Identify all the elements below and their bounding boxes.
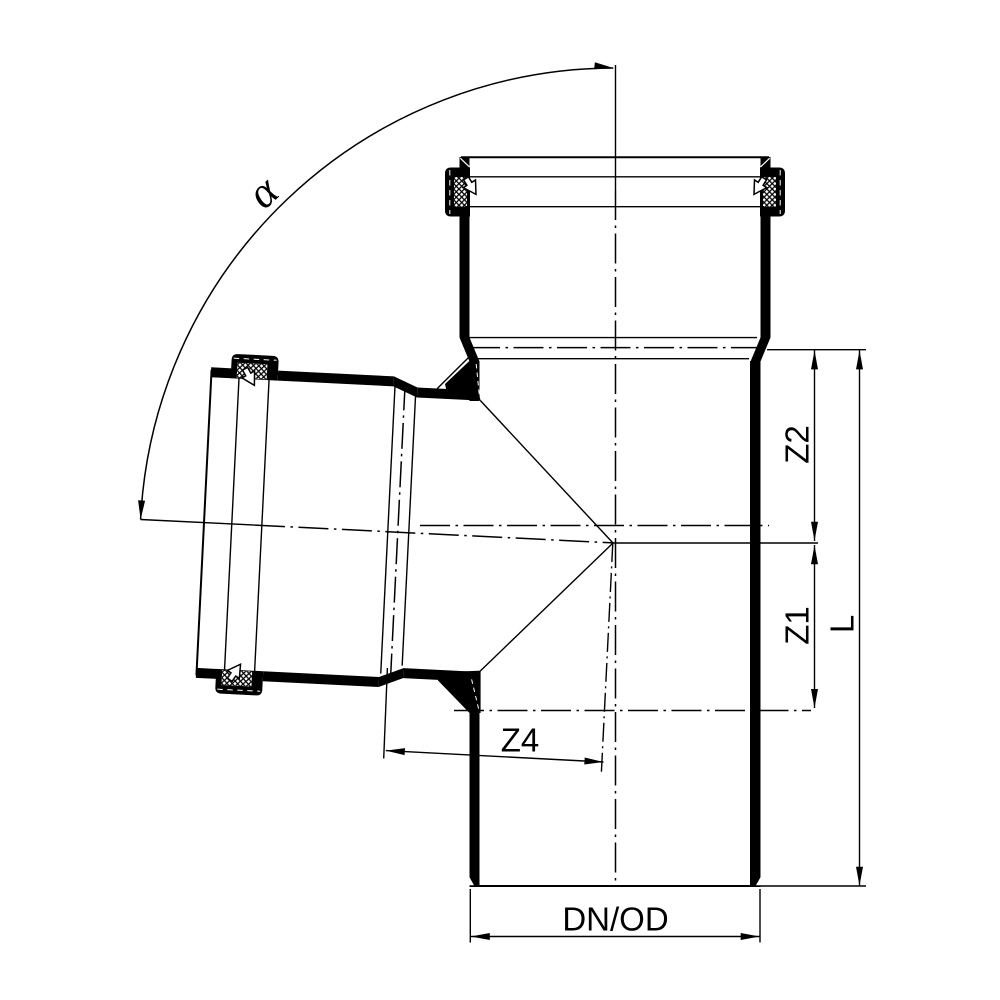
svg-text:Z1: Z1 [779, 606, 816, 645]
svg-text:DN/OD: DN/OD [562, 901, 668, 938]
svg-text:Z4: Z4 [501, 722, 540, 759]
svg-text:L: L [824, 615, 861, 633]
svg-text:Z2: Z2 [779, 425, 816, 464]
